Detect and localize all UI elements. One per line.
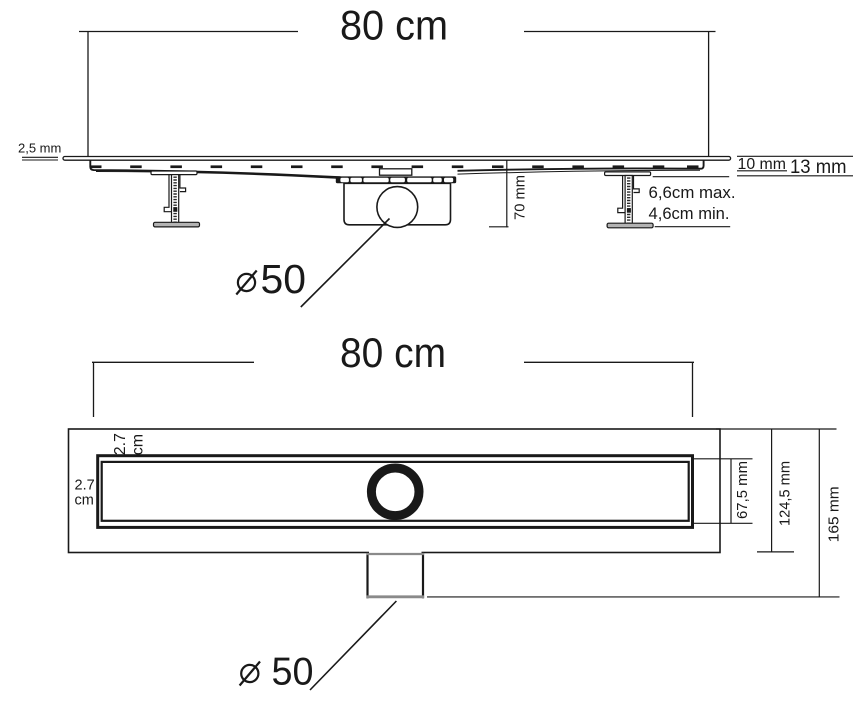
svg-text:80 cm: 80 cm [340, 329, 446, 376]
svg-text:2.7: 2.7 [112, 433, 129, 455]
svg-text:80 cm: 80 cm [340, 2, 448, 49]
svg-text:50: 50 [272, 651, 314, 694]
svg-text:70 mm: 70 mm [512, 175, 529, 220]
svg-text:50: 50 [261, 256, 307, 302]
svg-text:13 mm: 13 mm [790, 157, 847, 178]
svg-text:cm: cm [130, 434, 147, 455]
svg-text:2.7: 2.7 [75, 478, 95, 494]
svg-text:cm: cm [75, 493, 94, 509]
svg-text:165 mm: 165 mm [826, 486, 843, 542]
svg-text:67,5 mm: 67,5 mm [734, 461, 751, 519]
svg-text:2,5 mm: 2,5 mm [18, 141, 61, 156]
svg-text:124,5 mm: 124,5 mm [777, 461, 794, 526]
svg-text:6,6cm max.: 6,6cm max. [649, 183, 736, 202]
svg-text:4,6cm min.: 4,6cm min. [649, 204, 730, 223]
